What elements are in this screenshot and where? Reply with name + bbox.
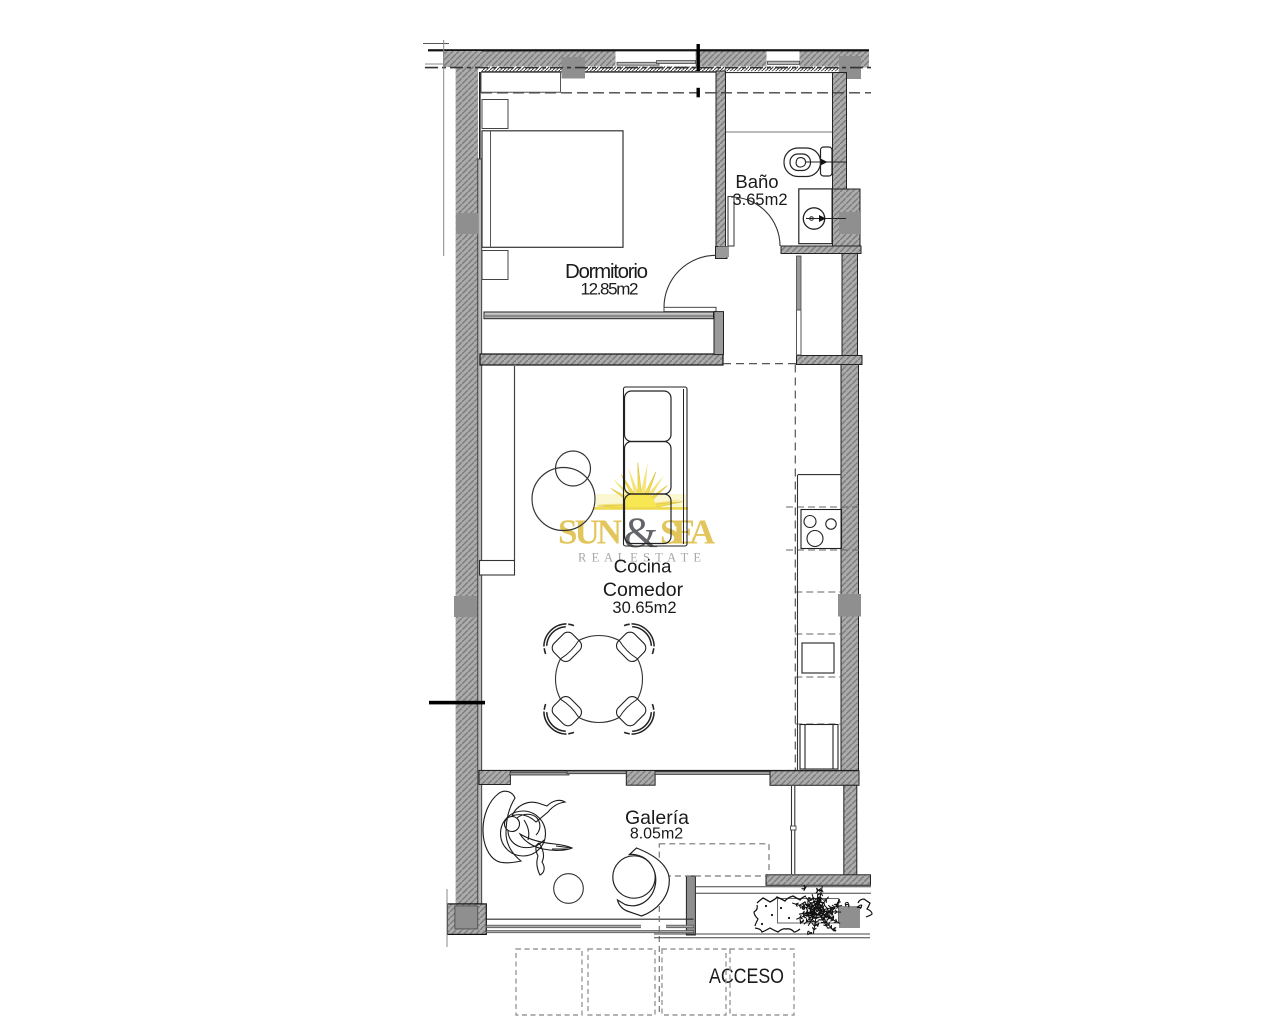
- svg-text:Comedor: Comedor: [603, 579, 684, 601]
- svg-text:3.65m2: 3.65m2: [732, 191, 787, 209]
- svg-text:Cocina: Cocina: [614, 556, 672, 577]
- svg-text:12.85m2: 12.85m2: [581, 280, 639, 299]
- svg-text:Baño: Baño: [735, 171, 778, 192]
- svg-text:ACCESO: ACCESO: [709, 965, 784, 988]
- svg-text:8.05m2: 8.05m2: [630, 826, 683, 843]
- svg-text:30.65m2: 30.65m2: [612, 599, 676, 617]
- svg-text:SUN: SUN: [558, 513, 622, 552]
